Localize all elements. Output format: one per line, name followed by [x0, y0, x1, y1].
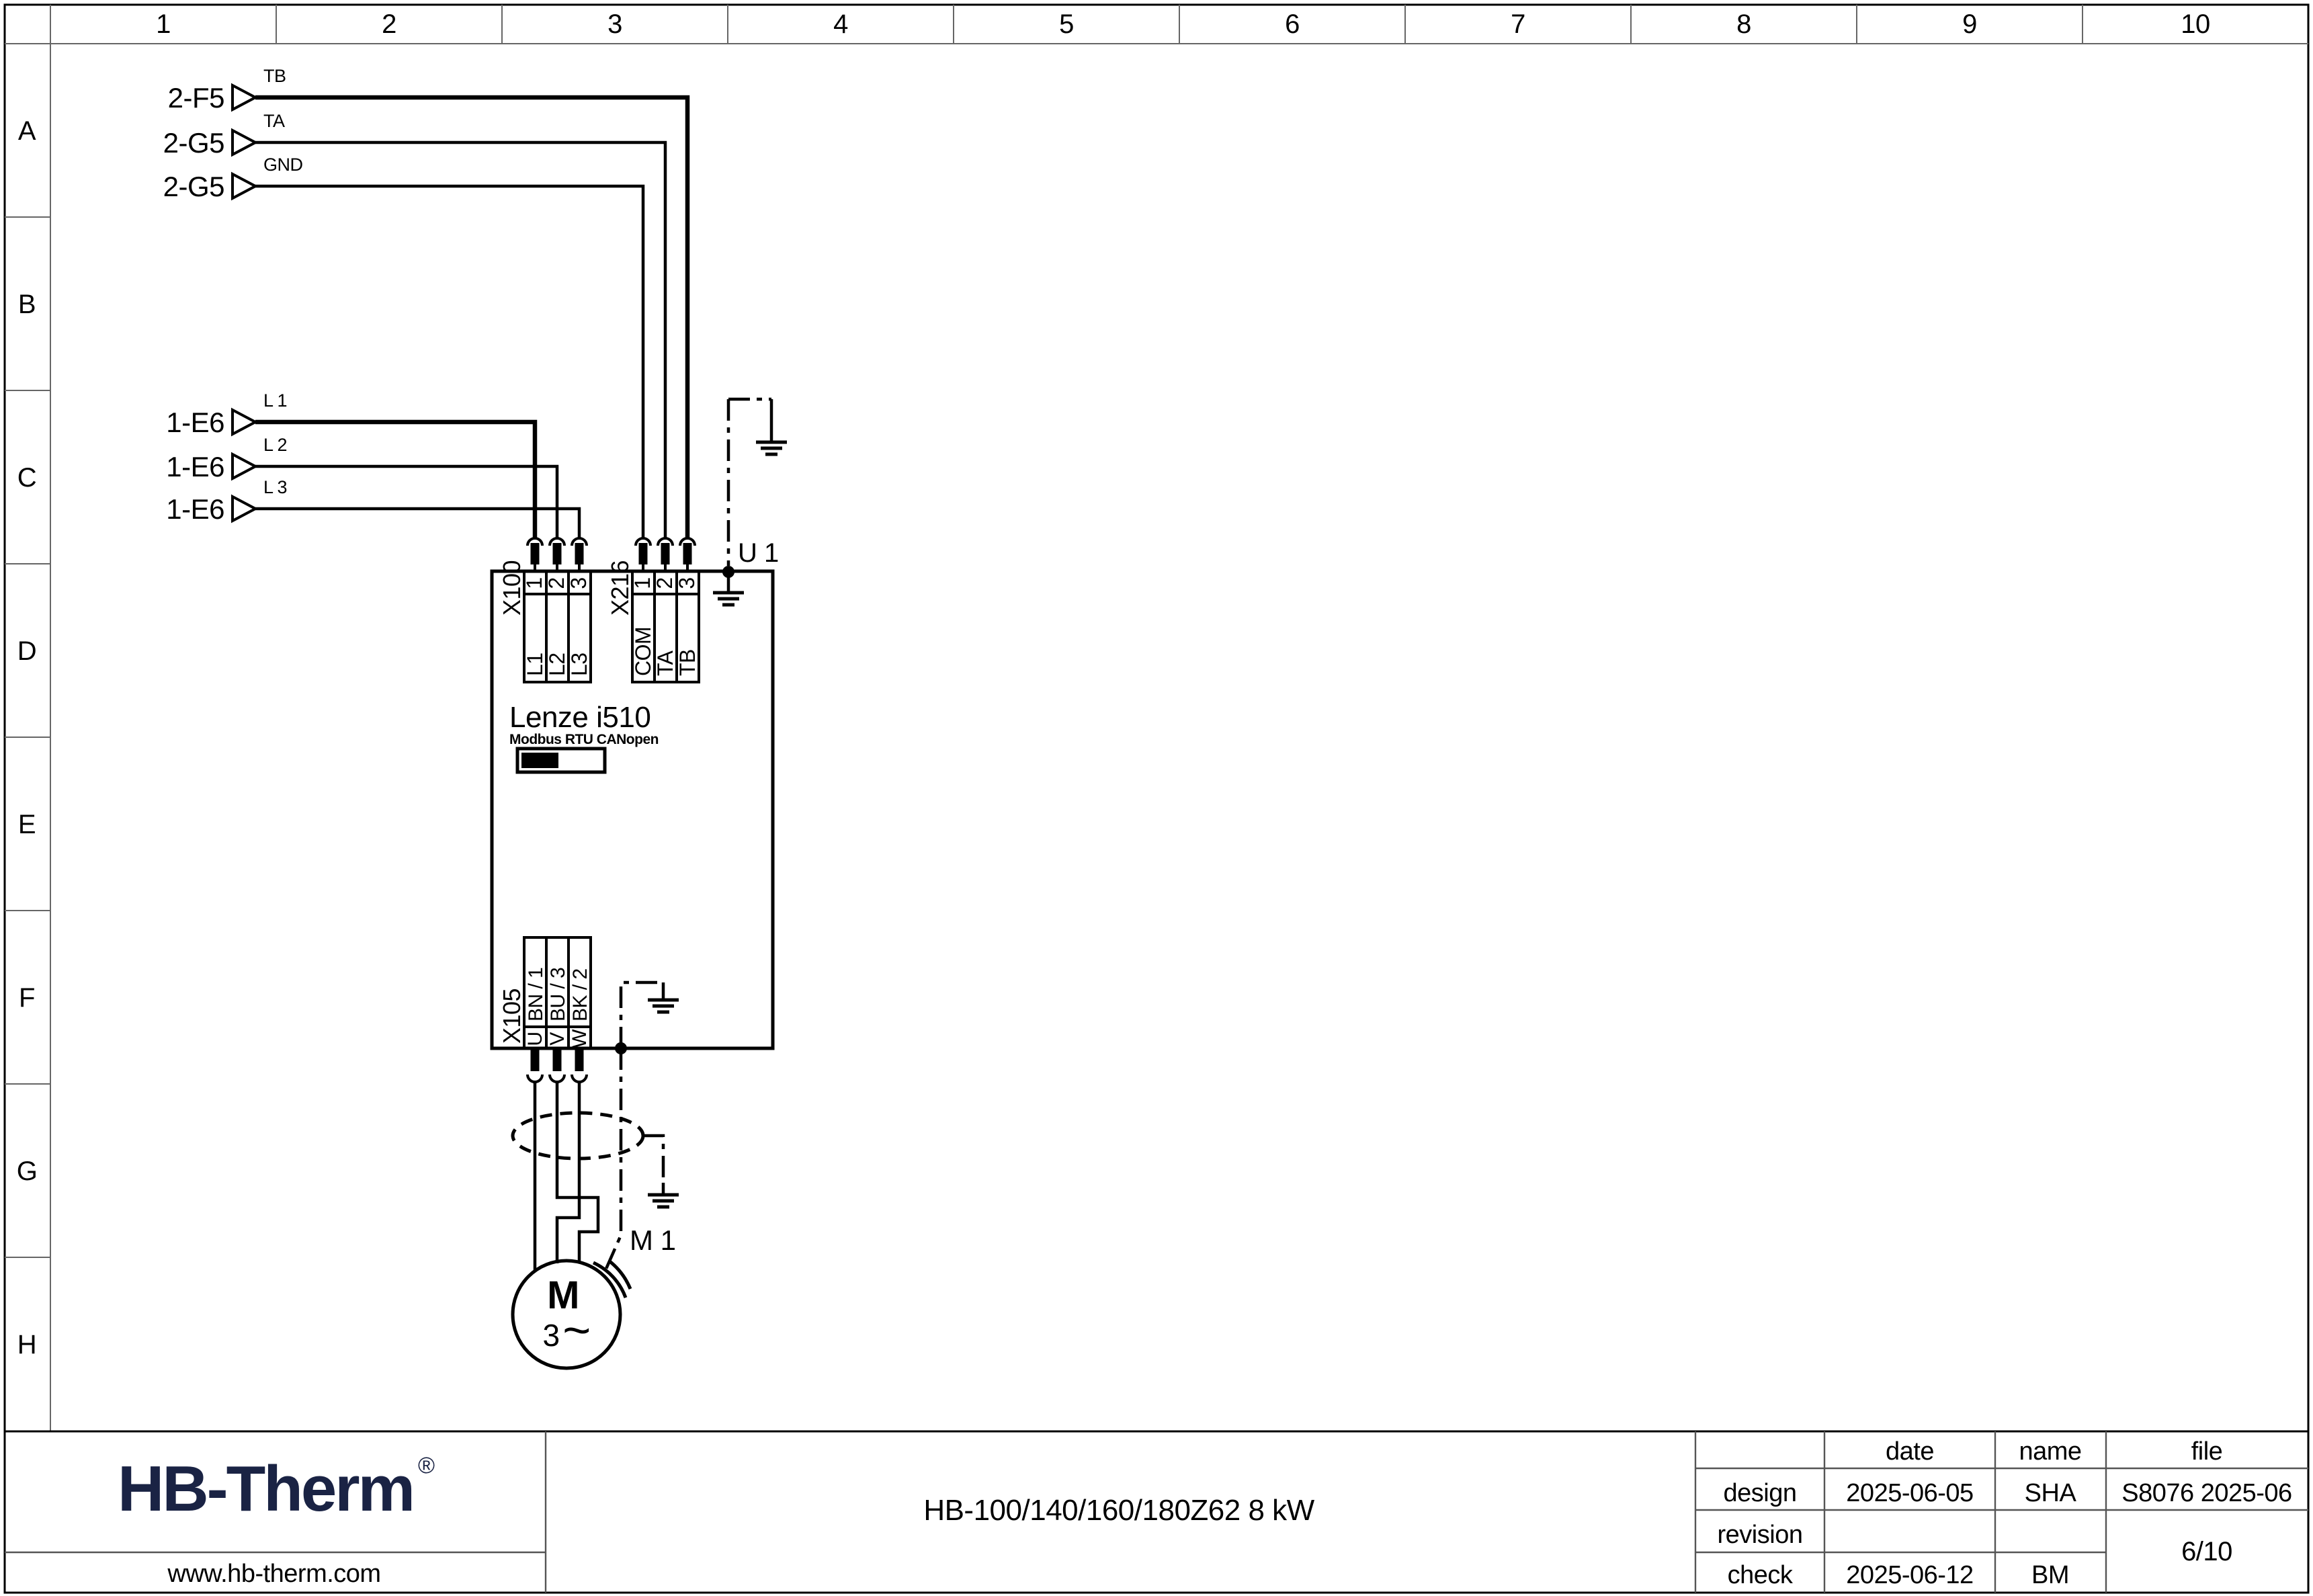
- row-label: C: [17, 463, 36, 493]
- wire-ta: [255, 142, 665, 538]
- column-label: 7: [1511, 9, 1525, 39]
- wire-l1: [255, 422, 535, 538]
- revision-label: revision: [1718, 1521, 1803, 1549]
- table-header-date: date: [1886, 1437, 1934, 1466]
- wire-gnd: [255, 186, 643, 538]
- terminal-label: L3: [567, 653, 591, 676]
- terminal-pin: 1: [522, 577, 546, 589]
- signal-arrow-icon: [233, 497, 255, 521]
- source-ref-label: 2-G5: [163, 171, 224, 202]
- drive-designation: U 1: [738, 538, 779, 568]
- source-ref-label: 1-E6: [166, 407, 224, 438]
- wire-tb: [255, 97, 687, 538]
- terminal-block-name: X105: [498, 989, 525, 1044]
- terminal-block-x100: X100 1 2 3 L1 L2 L3: [498, 560, 591, 682]
- terminal-pin: V: [546, 1032, 569, 1046]
- source-ref-label: 1-E6: [166, 451, 224, 482]
- row-ruler: A B C D E F G H: [5, 116, 50, 1359]
- shield-line-motor: [606, 1048, 621, 1269]
- schematic-page: 1 2 3 4 5 6 7 8 9 10 A B C D E F G H: [0, 0, 2313, 1596]
- row-label: H: [17, 1330, 36, 1359]
- column-label: 4: [833, 9, 848, 39]
- source-ref-label: 1-E6: [166, 493, 224, 525]
- check-label: check: [1728, 1561, 1794, 1589]
- column-label: 6: [1285, 9, 1300, 39]
- terminal-label: COM: [631, 627, 655, 676]
- company-logo: HB-Therm ®: [118, 1453, 435, 1525]
- terminal-pin: W: [569, 1029, 591, 1048]
- column-label: 10: [2181, 9, 2210, 39]
- terminal-label: L2: [545, 653, 569, 676]
- wiring-diagram: 1 2 3 4 5 6 7 8 9 10 A B C D E F G H: [0, 0, 2313, 1596]
- source-ref-label: 2-F5: [168, 82, 224, 114]
- earth-ground-icon: [756, 442, 787, 454]
- wire-label: TA: [263, 111, 285, 131]
- wire-label: TB: [263, 66, 286, 86]
- motor-circuit: M 3 ~ M 1: [513, 1048, 679, 1368]
- terminal-block-x216: X216 1 2 3 COM TA TB: [606, 560, 700, 682]
- column-ruler: 1 2 3 4 5 6 7 8 9 10: [156, 5, 2210, 44]
- table-header-name: name: [2019, 1437, 2081, 1466]
- page-number: 6/10: [2181, 1537, 2232, 1566]
- signal-arrow-icon: [233, 454, 255, 478]
- motor-wave: ~: [562, 1304, 591, 1357]
- terminal-pin: 3: [675, 577, 699, 589]
- wire-label: GND: [263, 155, 303, 175]
- drive-block: U 1 X100 1 2 3 L1 L2 L3: [492, 538, 779, 1082]
- row-label: D: [17, 636, 36, 666]
- terminal-label: L1: [523, 653, 547, 676]
- wire-label: L 1: [263, 390, 287, 411]
- drive-model: Lenze i510: [509, 701, 650, 734]
- column-label: 9: [1962, 9, 1977, 39]
- dip-switch-icon: [517, 749, 605, 772]
- row-label: A: [18, 116, 36, 146]
- drive-comm: Modbus RTU CANopen: [509, 732, 659, 747]
- terminal-label: TA: [653, 650, 677, 676]
- wire-l3: [255, 509, 579, 538]
- terminal-label: BN / 1: [525, 968, 547, 1021]
- terminal-pin: U: [524, 1032, 546, 1046]
- check-date: 2025-06-12: [1846, 1561, 1973, 1589]
- motor-wire-w: [557, 1083, 579, 1263]
- earth-ground-icon: [648, 1195, 679, 1207]
- row-label: F: [19, 983, 35, 1013]
- earth-ground-icon: [648, 1000, 679, 1012]
- incoming-signals: 2-F5 TB 2-G5 TA 2-G5 GND 1-E6 L 1 1-E6 L…: [163, 66, 687, 538]
- earth-ground-icon: [713, 593, 744, 605]
- design-date: 2025-06-05: [1846, 1479, 1973, 1507]
- signal-arrow-icon: [233, 174, 255, 198]
- wire-label: L 2: [263, 435, 287, 455]
- row-label: G: [17, 1157, 38, 1186]
- row-label: E: [18, 810, 36, 839]
- terminal-pin: 3: [566, 577, 591, 589]
- terminal-pin: 2: [544, 577, 569, 589]
- terminal-label: TB: [675, 649, 700, 676]
- design-file: S8076 2025-06: [2121, 1479, 2291, 1507]
- terminal-label: BU / 3: [547, 968, 569, 1021]
- row-label: B: [18, 290, 36, 319]
- terminal-pin: 1: [630, 577, 655, 589]
- drawing-title: HB-100/140/160/180Z62 8 kW: [923, 1494, 1314, 1527]
- page-frame: 1 2 3 4 5 6 7 8 9 10 A B C D E F G H: [5, 5, 2308, 1593]
- terminal-block-x105: X105 BN / 1 BU / 3 BK / 2 U V W: [498, 937, 591, 1048]
- registered-mark-icon: ®: [418, 1453, 435, 1478]
- motor-symbol: M 3 ~: [513, 1261, 630, 1368]
- signal-arrow-icon: [233, 130, 255, 155]
- motor-phase: 3: [542, 1318, 559, 1353]
- logo-text: HB-Therm: [118, 1453, 413, 1525]
- wire-l2: [255, 466, 557, 538]
- check-name: BM: [2031, 1561, 2069, 1589]
- column-label: 2: [382, 9, 396, 39]
- terminal-pin: 2: [653, 577, 677, 589]
- terminal-label: BK / 2: [569, 968, 591, 1021]
- signal-arrow-icon: [233, 410, 255, 434]
- company-website: www.hb-therm.com: [167, 1560, 380, 1588]
- column-label: 3: [607, 9, 622, 39]
- column-label: 5: [1059, 9, 1074, 39]
- terminal-block-name: X100: [498, 560, 525, 616]
- motor-designation: M 1: [630, 1224, 676, 1256]
- signal-arrow-icon: [233, 85, 255, 110]
- column-label: 8: [1736, 9, 1751, 39]
- column-label: 1: [156, 9, 171, 39]
- title-block: HB-Therm ® www.hb-therm.com HB-100/140/1…: [5, 1431, 2308, 1593]
- outer-border: [5, 5, 2308, 1593]
- terminal-block-name: X216: [606, 560, 634, 616]
- motor-wire-v: [557, 1083, 598, 1263]
- design-name: SHA: [2025, 1479, 2077, 1507]
- plug-contact-icons-bottom: [528, 1048, 587, 1082]
- source-ref-label: 2-G5: [163, 127, 224, 159]
- table-header-file: file: [2191, 1437, 2223, 1466]
- shield-branch: [643, 1136, 663, 1183]
- design-label: design: [1724, 1479, 1797, 1507]
- wire-label: L 3: [263, 477, 287, 497]
